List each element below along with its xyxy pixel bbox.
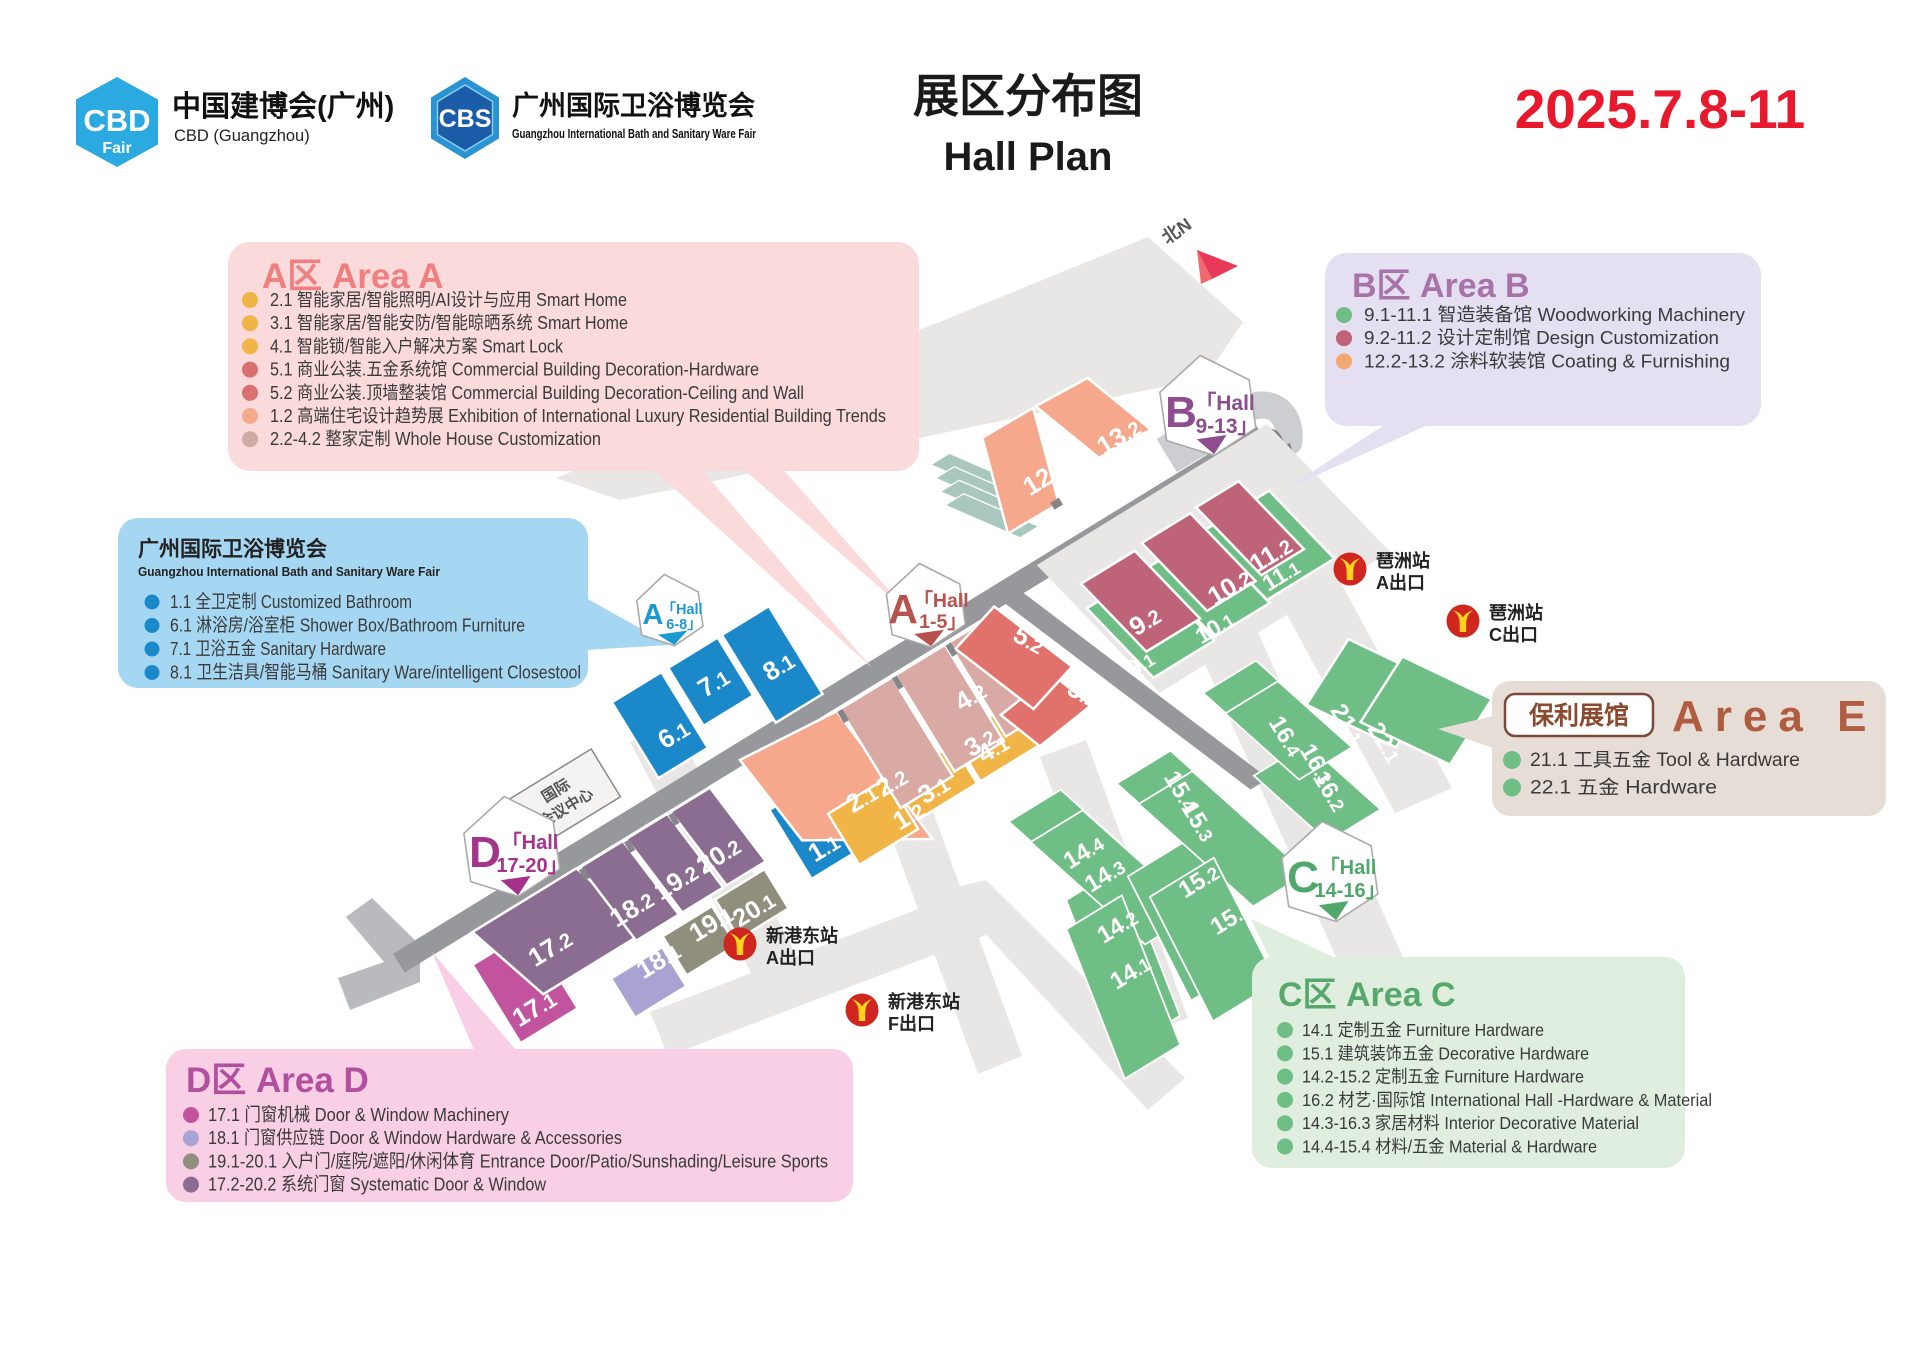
svg-text:8.1 卫生洁具/智能马桶 Sanitary Ware/in: 8.1 卫生洁具/智能马桶 Sanitary Ware/intelligent … xyxy=(170,662,581,683)
svg-text:12.2-13.2 涂料软装馆 Coating & Furn: 12.2-13.2 涂料软装馆 Coating & Furnishing xyxy=(1364,350,1730,371)
svg-text:16.2 材艺·国际馆 International Hall: 16.2 材艺·国际馆 International Hall -Hardware… xyxy=(1302,1090,1712,1110)
svg-text:1-5」: 1-5」 xyxy=(919,611,967,633)
svg-text:广州国际卫浴博览会: 广州国际卫浴博览会 xyxy=(512,90,755,121)
svg-text:A出口: A出口 xyxy=(766,947,815,968)
svg-text:3.1 智能家居/智能安防/智能晾晒系统 Smart Hom: 3.1 智能家居/智能安防/智能晾晒系统 Smart Home xyxy=(270,313,628,333)
svg-text:14.2-15.2 定制五金 Furniture Hardw: 14.2-15.2 定制五金 Furniture Hardware xyxy=(1302,1067,1584,1087)
svg-text:Guangzhou International Bath a: Guangzhou International Bath and Sanitar… xyxy=(512,126,756,141)
svg-text:Fair: Fair xyxy=(102,140,131,157)
svg-text:2.2-4.2 整家定制 Whole House Custo: 2.2-4.2 整家定制 Whole House Customization xyxy=(270,429,601,449)
svg-text:保利展馆: 保利展馆 xyxy=(1528,701,1629,730)
svg-text:1.1 全卫定制 Customized Bathroom: 1.1 全卫定制 Customized Bathroom xyxy=(170,591,412,612)
svg-text:7.1 卫浴五金 Sanitary Hardware: 7.1 卫浴五金 Sanitary Hardware xyxy=(170,638,386,659)
svg-text:6-8」: 6-8」 xyxy=(666,617,701,633)
svg-text:17.2-20.2 系统门窗 Systematic Door: 17.2-20.2 系统门窗 Systematic Door & Window xyxy=(208,1174,547,1195)
svg-text:21.1 工具五金 Tool & Hardware: 21.1 工具五金 Tool & Hardware xyxy=(1530,749,1800,771)
svg-text:C出口: C出口 xyxy=(1489,624,1538,645)
svg-text:CBS: CBS xyxy=(439,105,492,133)
svg-text:2025.7.8-11: 2025.7.8-11 xyxy=(1515,78,1806,140)
svg-text:琶洲站: 琶洲站 xyxy=(1489,602,1543,623)
svg-text:17.1 门窗机械 Door & Window Machi: 17.1 门窗机械 Door & Window Machinery xyxy=(208,1104,510,1125)
svg-text:14.3-16.3 家居材料 Interior Decora: 14.3-16.3 家居材料 Interior Decorative Mater… xyxy=(1302,1113,1639,1133)
svg-text:B: B xyxy=(1165,388,1197,437)
svg-text:F出口: F出口 xyxy=(888,1013,935,1034)
svg-text:5.1 商业公装.五金系统馆 Commercial Buil: 5.1 商业公装.五金系统馆 Commercial Building Decor… xyxy=(270,360,759,380)
svg-text:「Hall: 「Hall xyxy=(502,830,559,854)
svg-text:15.1 建筑装饰五金 Decorative Hardwar: 15.1 建筑装饰五金 Decorative Hardware xyxy=(1302,1043,1589,1063)
svg-text:A: A xyxy=(643,599,664,631)
svg-text:D区 Area D: D区 Area D xyxy=(186,1061,369,1100)
svg-text:新港东站: 新港东站 xyxy=(888,991,960,1012)
svg-text:B区 Area B: B区 Area B xyxy=(1352,267,1530,305)
svg-text:「Hall: 「Hall xyxy=(1320,855,1377,879)
svg-text:9.1-11.1 智造装备馆 Woodworking Mac: 9.1-11.1 智造装备馆 Woodworking Machinery xyxy=(1364,304,1746,325)
svg-text:19.1-20.1 入户门/庭院/遮阳/休闲体育 Entra: 19.1-20.1 入户门/庭院/遮阳/休闲体育 Entrance Door/P… xyxy=(208,1150,828,1171)
svg-text:5.2 商业公装.顶墙整装馆 Commercial Buil: 5.2 商业公装.顶墙整装馆 Commercial Building Decor… xyxy=(270,383,804,403)
svg-text:「Hall: 「Hall xyxy=(661,600,702,618)
svg-text:17-20」: 17-20」 xyxy=(496,855,567,877)
svg-text:展区分布图: 展区分布图 xyxy=(913,70,1143,122)
svg-text:14-16」: 14-16」 xyxy=(1314,880,1385,902)
svg-text:CBD (Guangzhou): CBD (Guangzhou) xyxy=(174,127,310,145)
svg-text:1.2 高端住宅设计趋势展 Exhibition of In: 1.2 高端住宅设计趋势展 Exhibition of Internationa… xyxy=(270,406,886,426)
svg-text:9-13」: 9-13」 xyxy=(1195,415,1258,438)
svg-text:CBD: CBD xyxy=(83,103,150,138)
svg-text:Hall Plan: Hall Plan xyxy=(944,135,1113,179)
svg-text:「Hall: 「Hall xyxy=(913,589,968,612)
svg-text:Area E: Area E xyxy=(1672,692,1877,741)
svg-text:4.1 智能锁/智能入户解决方案 Smart Lock: 4.1 智能锁/智能入户解决方案 Smart Lock xyxy=(270,336,564,356)
svg-text:琶洲站: 琶洲站 xyxy=(1376,550,1430,571)
svg-text:9.2-11.2 设计定制馆 Design Customiz: 9.2-11.2 设计定制馆 Design Customization xyxy=(1364,327,1719,348)
svg-text:A出口: A出口 xyxy=(1376,572,1425,593)
svg-text:C区 Area C: C区 Area C xyxy=(1278,976,1456,1014)
svg-text:广州国际卫浴博览会: 广州国际卫浴博览会 xyxy=(138,537,327,561)
svg-text:新港东站: 新港东站 xyxy=(766,925,838,946)
svg-text:14.4-15.4 材料/五金 Material & Har: 14.4-15.4 材料/五金 Material & Hardware xyxy=(1302,1137,1597,1157)
svg-text:22.1 五金 Hardware: 22.1 五金 Hardware xyxy=(1530,777,1717,799)
svg-text:「Hall: 「Hall xyxy=(1195,392,1255,415)
svg-text:2.1 智能家居/智能照明/AI设计与应用 Smart Ho: 2.1 智能家居/智能照明/AI设计与应用 Smart Home xyxy=(270,290,627,310)
svg-text:中国建博会(广州): 中国建博会(广州) xyxy=(172,90,394,123)
svg-text:6.1 淋浴房/浴室柜 Shower Box/Bathroo: 6.1 淋浴房/浴室柜 Shower Box/Bathroom Furnitur… xyxy=(170,615,525,636)
svg-text:14.1 定制五金 Furniture Hardware: 14.1 定制五金 Furniture Hardware xyxy=(1302,1020,1544,1040)
svg-text:Guangzhou International Bath a: Guangzhou International Bath and Sanitar… xyxy=(138,564,440,579)
svg-text:18.1 门窗供应链 Door & Window Hard: 18.1 门窗供应链 Door & Window Hardware & Acce… xyxy=(208,1127,622,1148)
